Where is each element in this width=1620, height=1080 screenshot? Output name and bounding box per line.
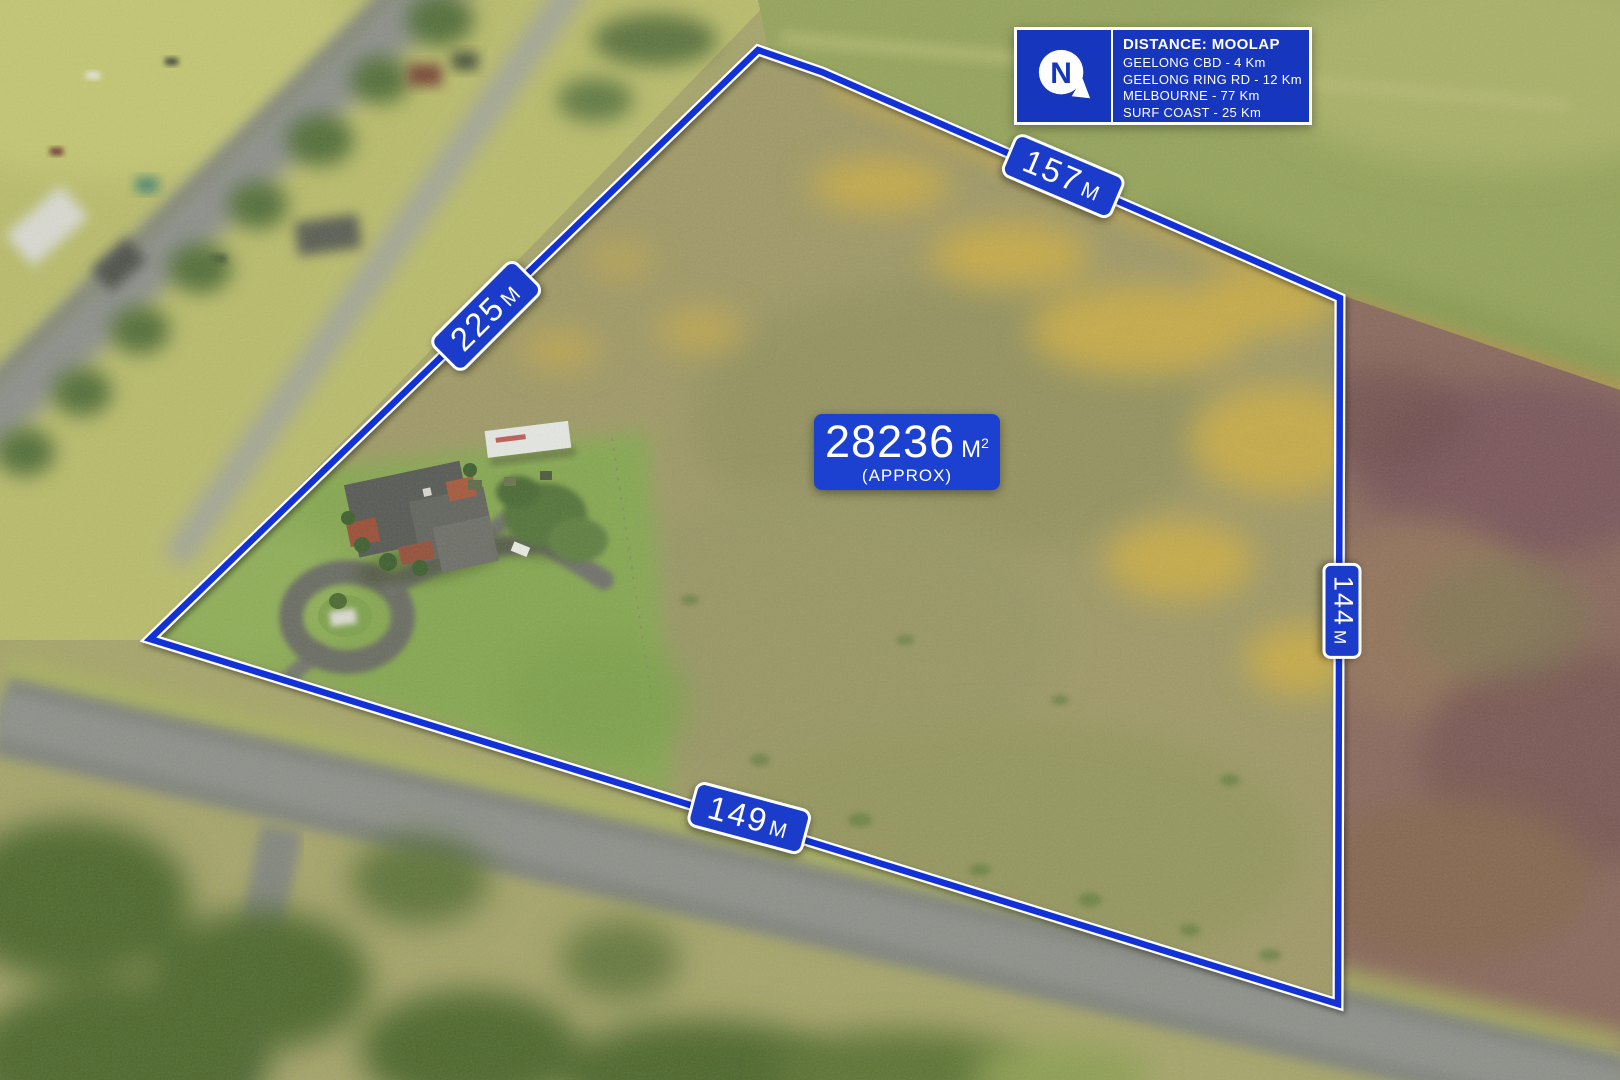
dimension-value: 149 [705,790,773,838]
aerial-photo-canvas [0,0,1620,1080]
distance-item: GEELONG CBD - 4 Km [1123,55,1309,72]
north-icon: N [1035,47,1093,105]
distance-item: SURF COAST - 25 Km [1123,105,1309,122]
compass-north-logo: N [1017,30,1113,122]
dimension-label-right: 144 M [1323,563,1362,659]
svg-text:N: N [1050,57,1072,90]
distance-list: DISTANCE: MOOLAP GEELONG CBD - 4 Km GEEL… [1113,30,1309,122]
area-value: 28236 [825,419,955,464]
dimension-value: 144 [1330,576,1357,627]
photo-grain [0,0,1620,1080]
distance-info-box: N DISTANCE: MOOLAP GEELONG CBD - 4 Km GE… [1014,27,1312,125]
aerial-property-photo: 225 M 157 M 144 M 149 M 28236 M2 (APPROX… [0,0,1620,1080]
dimension-unit: M [1078,179,1104,206]
distance-item: MELBOURNE - 77 Km [1123,88,1309,105]
distance-item: GEELONG RING RD - 12 Km [1123,72,1309,89]
area-qualifier: (APPROX) [862,466,952,486]
distance-title: DISTANCE: MOOLAP [1123,36,1309,53]
dimension-unit: M [767,817,791,842]
area-unit: M2 [961,436,989,462]
dimension-unit: M [1332,630,1349,646]
area-label: 28236 M2 (APPROX) [814,414,1000,490]
